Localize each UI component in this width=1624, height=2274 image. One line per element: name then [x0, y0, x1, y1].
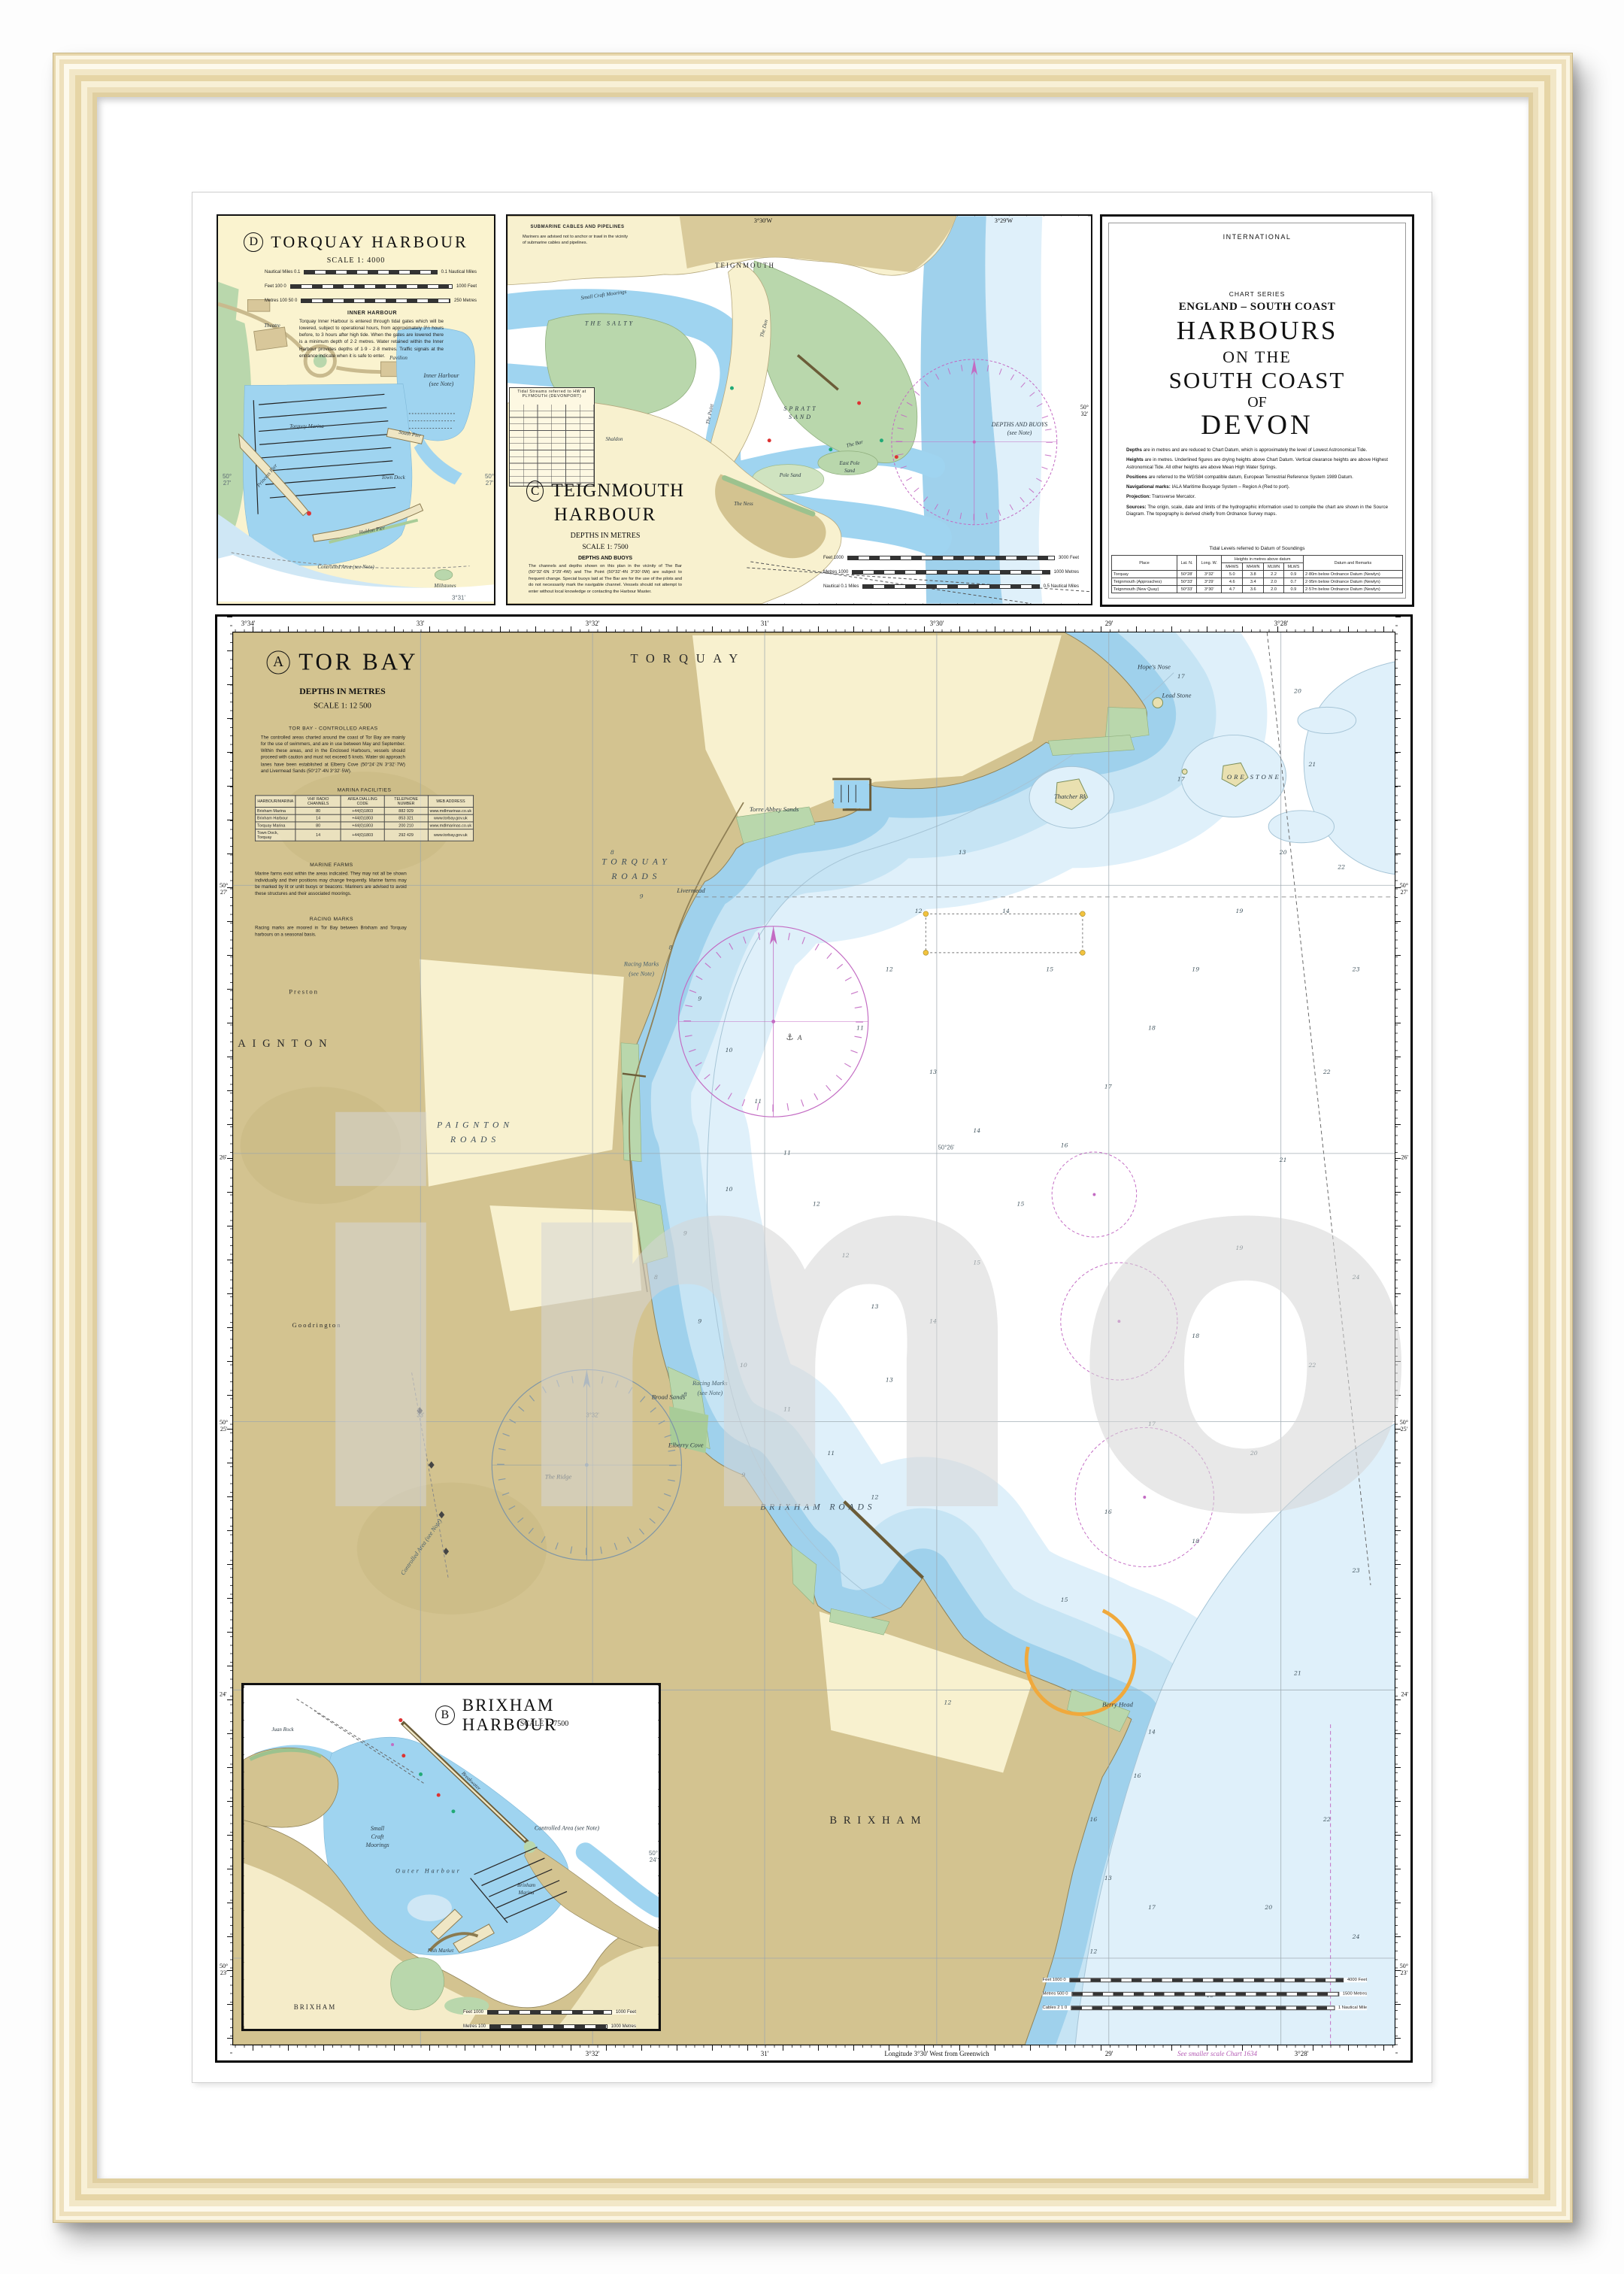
tor-bay-title-block: A TOR BAY DEPTHS IN METRES SCALE 1: 12 5… — [255, 648, 430, 710]
marina-row: Town Dock, Torquay14 +44(0)1803292 429ww… — [256, 829, 474, 841]
tidal-row: Teignmouth (Approaches)50°33'3°29' 4.63.… — [1112, 578, 1403, 586]
tidal-table-caption: Tidal Levels referred to Datum of Soundi… — [1102, 546, 1412, 551]
anchorage-symbol: ⚓ — [786, 1032, 793, 1042]
cables-title: SUBMARINE CABLES AND PIPELINES — [521, 225, 634, 229]
region-label: ENGLAND – SOUTH COAST — [1102, 301, 1412, 314]
scale-bar: Metres 10001000 Metres — [823, 570, 1079, 575]
longitude-label: 29' — [1105, 620, 1113, 627]
chart-main-title: SOUTH COAST — [1102, 367, 1412, 394]
longitude-label: 3°28' — [1274, 620, 1289, 627]
picture-frame: D TORQUAY HARBOUR SCALE 1: 4000 Nautical… — [53, 53, 1573, 2223]
teignmouth-panel-title: C TEIGNMOUTH — [526, 481, 684, 502]
chart-series-label: CHART SERIES — [1102, 290, 1412, 298]
latitude-label: 26' — [1401, 1155, 1408, 1162]
tidal-row: Torquay50°28'3°32' 5.03.82.20.9 2·80m be… — [1112, 571, 1403, 578]
panel-letter: D — [244, 232, 263, 252]
tidal-levels-table: Place Lat. N. Long. W. Heights in metres… — [1111, 555, 1403, 593]
scale-bar: Feet 10003000 Feet — [823, 556, 1079, 560]
breakwater-light — [398, 1718, 403, 1722]
border-label: 50° 32' — [1080, 405, 1089, 418]
brixham-scale: SCALE 1: 7500 — [435, 1720, 653, 1728]
scale-bar: Cables 2 1 01 Nautical Mile — [1043, 2006, 1368, 2010]
latitude-label: 24' — [1401, 1692, 1408, 1699]
controlled-areas-note: The controlled areas charted around the … — [261, 734, 405, 774]
latitude-label: 26' — [220, 1155, 226, 1162]
marina-row: Brixham Harbour14 +44(0)1803853 321www.t… — [256, 814, 474, 822]
brixham-panel-title: B BRIXHAM HARBOUR — [435, 1696, 653, 1735]
torquay-harbour — [832, 779, 870, 810]
longitude-label: 29' — [1105, 2050, 1113, 2057]
anchorage-letter: A — [797, 1034, 802, 1042]
torquay-scale: SCALE 1: 4000 — [218, 256, 494, 265]
chart-print: D TORQUAY HARBOUR SCALE 1: 4000 Nautical… — [192, 193, 1432, 2082]
teignmouth-depths: DEPTHS IN METRES — [526, 532, 684, 540]
chart-main-title: ON THE — [1102, 347, 1412, 367]
marine-farms-note: Marine farms exist within the areas indi… — [255, 871, 407, 898]
latitude-label: 50° 27' — [1400, 883, 1408, 896]
chart-note: Navigational marks: IALA Maritime Buoyag… — [1126, 484, 1388, 490]
border-label: 3°30'W — [754, 217, 772, 224]
scale-bar: Metres 100 50 0250 Metres — [265, 299, 477, 303]
chart-main-title: DEVON — [1102, 409, 1412, 441]
latitude-label: 50° 25' — [220, 1420, 228, 1433]
scale-label: SCALE 1: 12 500 — [255, 702, 430, 711]
chart-note: Sources: The origin, scale, date and lim… — [1126, 504, 1388, 518]
chart-note: Depths are in metres and are reduced to … — [1126, 447, 1388, 453]
tidal-streams-table: Tidal Streams referred to HW at PLYMOUTH… — [509, 387, 595, 487]
latitude-label: 50° 23' — [220, 1963, 228, 1977]
chart-note: Positions are referred to the WGS84 comp… — [1126, 474, 1388, 481]
chart-note: Heights are in metres. Underlined figure… — [1126, 456, 1388, 471]
latitude-label: 24' — [220, 1692, 226, 1699]
panel-title-text: TORQUAY HARBOUR — [271, 232, 468, 252]
longitude-label: 3°34' — [241, 620, 256, 627]
panel-teignmouth-harbour: SUBMARINE CABLES AND PIPELINES Mariners … — [506, 214, 1092, 605]
marine-farms-title: MARINE FARMS — [255, 863, 408, 868]
longitude-label: 31' — [761, 620, 769, 627]
latitude-label: 50° 27' — [220, 883, 228, 896]
chart-note: Projection: Transverse Mercator. — [1126, 493, 1388, 500]
inner-harbour-note: Torquay Inner Harbour is entered through… — [299, 318, 444, 359]
latitude-label: 50° 25' — [1400, 1420, 1408, 1433]
panel-title-text: BRIXHAM HARBOUR — [462, 1696, 653, 1735]
graduation-top — [217, 617, 1410, 632]
marina-row: Torquay Marina80 +44(0)1803200 210www.md… — [256, 822, 474, 829]
panel-title-text: TEIGNMOUTH — [551, 481, 684, 502]
longitude-label: 31' — [761, 2050, 769, 2057]
panel-title-text2: HARBOUR — [526, 505, 684, 526]
lead-stone — [1153, 698, 1163, 708]
panel-torquay-harbour: D TORQUAY HARBOUR SCALE 1: 4000 Nautical… — [217, 214, 495, 605]
brixham-harbour-map — [244, 1685, 659, 2029]
graduation-right — [1395, 617, 1410, 2060]
border-label: 3°29'W — [995, 217, 1013, 224]
longitude-label: 3°30' — [930, 620, 944, 627]
millstones-rock — [435, 570, 453, 581]
panel-chart-title: INTERNATIONAL CHART SERIES ENGLAND – SOU… — [1100, 214, 1414, 607]
teignmouth-scale: SCALE 1: 7500 — [526, 544, 684, 551]
longitude-label: Longitude 3°30' West from Greenwich — [884, 2050, 989, 2057]
scale-bar: Feet 1000 04000 Feet — [1043, 1978, 1368, 1982]
scale-bar: Metres 1001000 Metres — [463, 2024, 636, 2029]
shag-rock — [1182, 769, 1187, 775]
marina-row: Brixham Marina80 +44(0)1803882 929www.md… — [256, 807, 474, 814]
racing-marks-title: RACING MARKS — [255, 917, 408, 922]
chart-main-title: HARBOURS — [1102, 316, 1412, 346]
controlled-areas-title: TOR BAY - CONTROLLED AREAS — [262, 726, 404, 732]
marina-facilities-caption: MARINA FACILITIES — [255, 788, 474, 793]
torquay-panel-title: D TORQUAY HARBOUR — [218, 232, 494, 252]
cables-note: Mariners are advised not to anchor or tr… — [523, 234, 628, 246]
latitude-label: 50° 23' — [1400, 1963, 1408, 1977]
longitude-label: See smaller scale Chart 1634 — [1177, 2050, 1257, 2057]
scale-bar: Feet 10001000 Feet — [463, 2010, 636, 2015]
depths-label: DEPTHS IN METRES — [255, 686, 430, 697]
longitude-label: 33' — [417, 620, 425, 627]
scale-bar: Metres 500 01500 Metres — [1043, 1992, 1368, 1997]
international-label: INTERNATIONAL — [1102, 233, 1412, 241]
teignmouth-note: The channels and depths shown on this pl… — [529, 563, 682, 595]
panel-letter: C — [526, 481, 544, 502]
graduation-left — [217, 617, 232, 2060]
scale-bar: Nautical Miles 0.10.1 Nautical Miles — [265, 270, 477, 274]
racing-marks-note: Racing marks are moored in Tor Bay betwe… — [255, 925, 407, 938]
longitude-label: 3°28' — [1295, 2050, 1309, 2057]
longitude-label: 3°32' — [586, 2050, 600, 2057]
panel-letter: A — [267, 650, 290, 674]
panel-brixham-harbour: B BRIXHAM HARBOUR SCALE 1: 7500 Feet 100… — [241, 1683, 661, 2031]
scale-bar: Feet 100 01000 Feet — [265, 284, 477, 289]
inner-harbour-note-title: INNER HARBOUR — [301, 311, 444, 316]
marina-facilities-table: HARBOUR/MARINAVHF RADIO CHANNELS AREA DI… — [255, 795, 474, 841]
scale-bar: Nautical 0.1 Miles0.5 Nautical Miles — [823, 584, 1079, 589]
teignmouth-sub: DEPTHS AND BUOYS — [526, 556, 684, 561]
mat-board: D TORQUAY HARBOUR SCALE 1: 4000 Nautical… — [97, 97, 1529, 2178]
tidal-row: Teignmouth (New Quay)50°33'3°30' 4.73.62… — [1112, 586, 1403, 593]
chart-notes: Depths are in metres and are reduced to … — [1126, 447, 1388, 520]
longitude-label: 3°32' — [586, 620, 600, 627]
panel-title-text: TOR BAY — [298, 648, 418, 675]
